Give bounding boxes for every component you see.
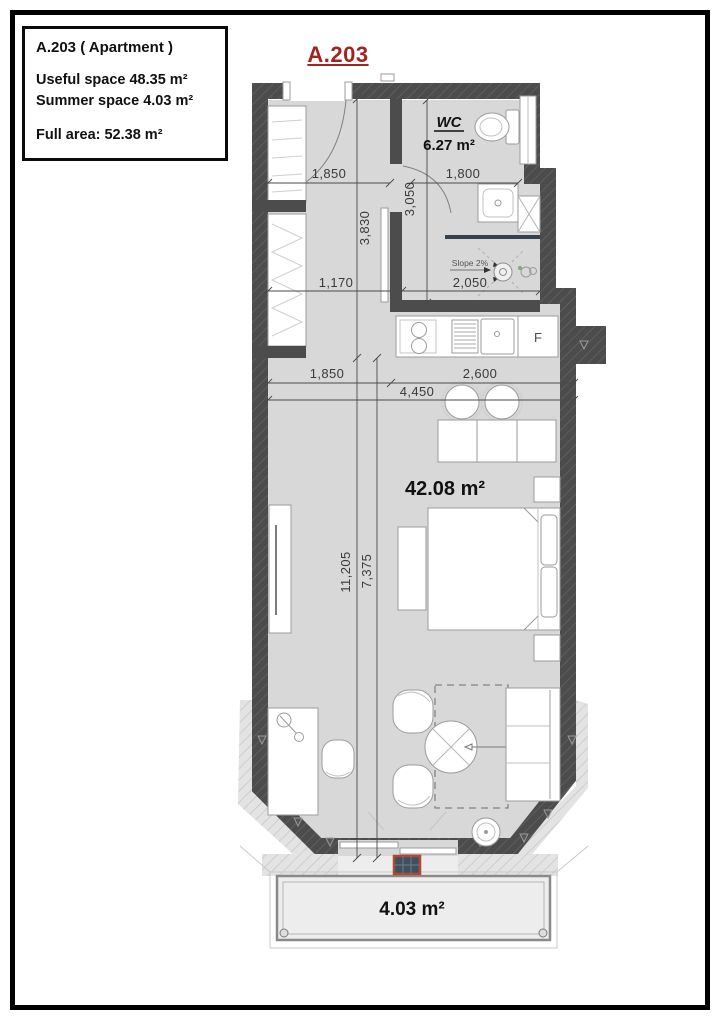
balcony-area-label: 4.03 m² bbox=[379, 899, 444, 920]
nightstand bbox=[534, 635, 560, 661]
dim-mid-left: 1,850 bbox=[310, 366, 345, 381]
dim-wc-width: 2,050 bbox=[453, 275, 488, 290]
washbasin bbox=[478, 184, 518, 222]
bench bbox=[398, 527, 426, 610]
dim-room-width: 4,450 bbox=[400, 384, 435, 399]
dim-hall-height: 3,830 bbox=[357, 211, 372, 246]
pillow bbox=[541, 515, 557, 565]
nightstand bbox=[534, 477, 560, 502]
wardrobe bbox=[438, 420, 556, 462]
wc-window bbox=[520, 96, 536, 164]
kitchen-sink bbox=[481, 319, 514, 354]
railing-post bbox=[539, 929, 547, 937]
full-area: Full area: 52.38 m² bbox=[36, 125, 215, 146]
desk bbox=[268, 708, 318, 815]
drainboard bbox=[452, 320, 478, 353]
dim-wc-height: 3,050 bbox=[402, 182, 417, 217]
slope-label: Slope 2% bbox=[452, 258, 489, 268]
dim-room-height: 7,375 bbox=[359, 554, 374, 589]
column-marker bbox=[394, 856, 420, 874]
shower-tray bbox=[518, 196, 540, 232]
fridge-label: F bbox=[534, 330, 542, 345]
useful-space: Useful space 48.35 m² bbox=[36, 70, 215, 91]
dim-top-left: 1,850 bbox=[312, 166, 347, 181]
wc-label: WC bbox=[437, 114, 463, 131]
info-box: A.203 ( Apartment ) Useful space 48.35 m… bbox=[22, 26, 228, 161]
sofa bbox=[506, 688, 560, 801]
apartment-id: A.203 ( Apartment ) bbox=[36, 39, 215, 56]
plant bbox=[472, 818, 500, 846]
tv-unit bbox=[269, 505, 291, 633]
desk-chair bbox=[322, 740, 354, 778]
cooktop-burner bbox=[412, 339, 427, 354]
cooktop-burner bbox=[412, 323, 427, 338]
plan-title: A.203 bbox=[288, 42, 388, 68]
bed bbox=[428, 508, 560, 630]
dim-total-height: 11,205 bbox=[338, 551, 353, 592]
railing-post bbox=[280, 929, 288, 937]
dim-top-right: 1,800 bbox=[446, 166, 481, 181]
wall-vent-marker bbox=[381, 74, 394, 81]
pillow bbox=[541, 567, 557, 617]
dim-hall-width: 1,170 bbox=[319, 275, 354, 290]
structural-column bbox=[562, 326, 606, 364]
main-area-label: 42.08 m² bbox=[405, 478, 485, 500]
shower-glass bbox=[445, 235, 540, 239]
floor-plan-sheet: A.203 ( Apartment ) Useful space 48.35 m… bbox=[0, 0, 724, 1024]
summer-space: Summer space 4.03 m² bbox=[36, 91, 215, 112]
wc-area-label: 6.27 m² bbox=[423, 137, 475, 154]
dim-kitchen-width: 2,600 bbox=[463, 366, 498, 381]
